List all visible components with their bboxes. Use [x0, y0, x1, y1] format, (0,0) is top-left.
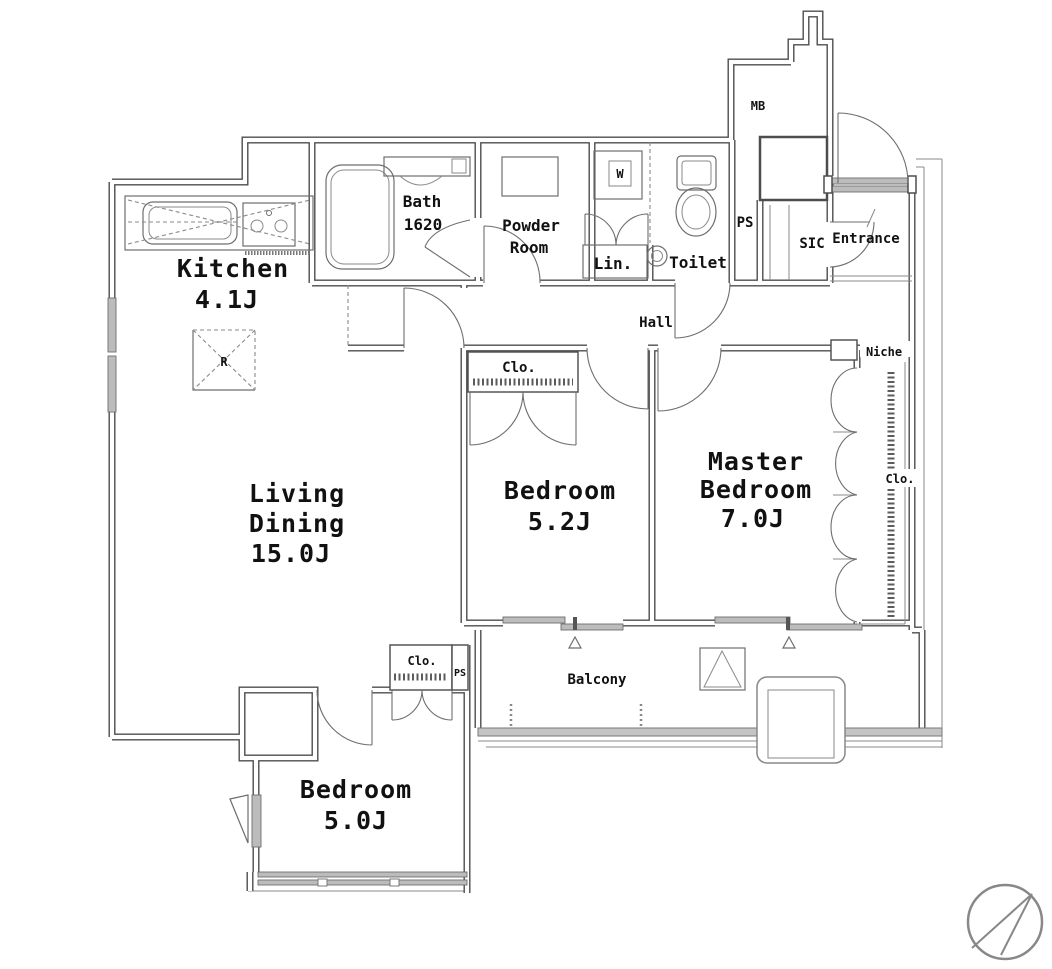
bedroom50-size: 5.0J: [324, 806, 388, 835]
kitchen-counter: [125, 196, 313, 250]
washer-label: W: [616, 167, 624, 181]
bath-shelf: [452, 159, 466, 173]
hall-label: Hall: [639, 315, 673, 331]
powder-label-1: Powder: [502, 216, 560, 235]
master-balcony-window: [715, 617, 790, 623]
kitchen-size: 4.1J: [195, 285, 259, 314]
entrance-label: Entrance: [832, 231, 899, 247]
living-left-window: [108, 298, 116, 352]
entrance-door: [838, 113, 908, 183]
window-center-marks: [569, 637, 795, 648]
niche-label: Niche: [866, 345, 902, 359]
burner: [267, 211, 272, 216]
compass-icon: [968, 885, 1042, 959]
burner: [275, 220, 287, 232]
master-label-2: Bedroom: [700, 475, 812, 504]
master-size: 7.0J: [721, 504, 785, 533]
window-latch: [390, 879, 399, 886]
balcony-railing-lines: [478, 741, 942, 747]
refrigerator-label: R: [220, 355, 228, 369]
master-balcony-window: [787, 624, 862, 630]
sic-label: SIC: [799, 236, 824, 252]
window-mullion: [786, 617, 790, 630]
evacuation-hatch-triangle: [704, 651, 741, 687]
toilet-tank-inner: [682, 161, 711, 185]
bedroom52-label: Bedroom: [504, 476, 616, 505]
master-bedroom-door: [658, 348, 721, 411]
bedroom52-size: 5.2J: [528, 507, 592, 536]
entrance-threshold: [830, 178, 910, 184]
vanity: [502, 157, 558, 196]
kitchen-sink-inner: [149, 207, 231, 239]
window-mullion: [573, 617, 577, 630]
closet-bedroom52-doors: [470, 392, 576, 445]
bedroom50-bottom-window: [258, 880, 467, 885]
bedroom50-left-window: [252, 795, 261, 847]
balcony-railing: [478, 728, 942, 736]
door-post: [908, 176, 916, 193]
floor-plan-svg: Kitchen 4.1J Living Dining 15.0J Bedroom…: [0, 0, 1052, 969]
living-left-window: [108, 356, 116, 412]
bedroom50-window-symbol: [230, 795, 248, 843]
kitchen-sink: [143, 202, 237, 244]
bedroom50-door: [317, 690, 372, 745]
evacuation-hatch: [700, 648, 745, 690]
bedroom50-bottom-window: [258, 872, 467, 877]
balcony-elements: [478, 648, 942, 763]
linen-label: Lin.: [594, 254, 633, 273]
entrance-column: [760, 137, 827, 200]
meter-box-label: MB: [751, 99, 765, 113]
balcony-drains: [511, 704, 641, 728]
pipe-shaft-living-label: PS: [454, 668, 466, 679]
bathtub-inner: [331, 170, 389, 264]
living-size: 15.0J: [251, 539, 331, 568]
toilet-bowl-inner: [682, 195, 710, 229]
bedroom52-door: [587, 348, 648, 409]
closet-living-label: Clo.: [408, 654, 437, 668]
entrance-step: [830, 276, 912, 281]
master-label-1: Master: [708, 447, 804, 476]
living-label-1: Living: [249, 479, 345, 508]
powder-label-2: Room: [510, 238, 549, 257]
closet-living-doors: [392, 690, 452, 720]
toilet-door: [675, 283, 730, 338]
bedroom52-balcony-window: [561, 624, 623, 630]
floor-plan-page: Kitchen 4.1J Living Dining 15.0J Bedroom…: [0, 0, 1052, 969]
toilet-label: Toilet: [669, 253, 727, 272]
pipe-shaft-top-label: PS: [737, 215, 754, 231]
sic-shelves: [770, 205, 789, 280]
bedroom50-label: Bedroom: [300, 775, 412, 804]
balcony-label: Balcony: [567, 672, 627, 688]
closet-bedroom52-label: Clo.: [502, 360, 536, 376]
living-hall-door: [404, 288, 464, 348]
door-post: [824, 176, 832, 193]
bedroom52-balcony-window: [503, 617, 565, 623]
kitchen-label: Kitchen: [177, 254, 289, 283]
entrance-threshold: [830, 186, 910, 192]
bath-size: 1620: [404, 215, 443, 234]
living-label-2: Dining: [249, 509, 345, 538]
niche-box: [831, 340, 857, 360]
bath-label: Bath: [403, 192, 442, 211]
window-latch: [318, 879, 327, 886]
bath-sink-curve: [400, 176, 442, 185]
bathtub: [326, 165, 394, 269]
closet-master-label: Clo.: [886, 472, 915, 486]
